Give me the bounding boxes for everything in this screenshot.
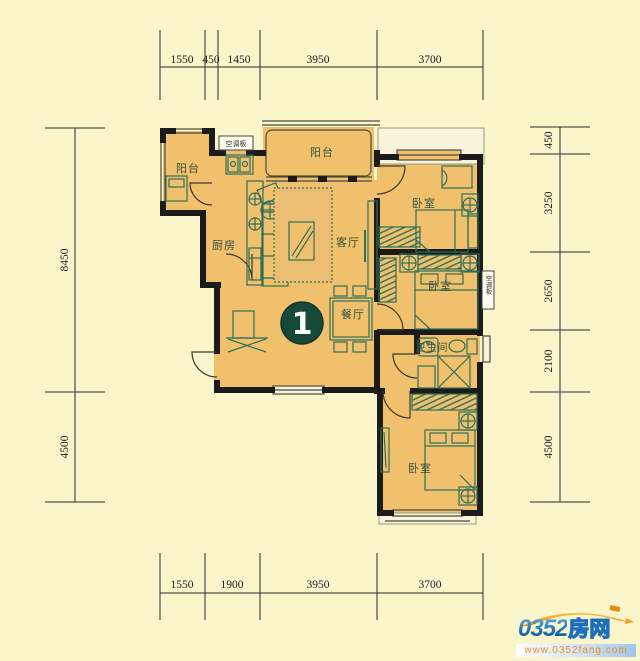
dim-right-4: 2100 xyxy=(543,349,555,372)
dim-right-2: 3250 xyxy=(543,191,555,214)
dim-bottom-4: 3700 xyxy=(419,579,442,591)
dim-top-1: 1550 xyxy=(171,54,194,66)
dim-left-1: 8450 xyxy=(59,248,71,271)
headboard xyxy=(418,255,461,269)
label-bedroom-top: 卧室 xyxy=(412,196,436,210)
dim-top-4: 3950 xyxy=(307,54,330,66)
dim-top-3: 1450 xyxy=(228,54,251,66)
dim-top-2: 450 xyxy=(202,54,220,66)
ac-panel-right-label: 空调板 xyxy=(484,274,492,296)
dim-bottom-2: 1900 xyxy=(221,579,244,591)
watermark-brand: 0352房网 xyxy=(518,617,610,641)
dining-cabinet xyxy=(379,258,396,302)
label-balcony-top: 阳台 xyxy=(310,145,334,159)
floorplan-page: 1550 450 1450 3950 3700 1550 1900 3950 3… xyxy=(0,0,640,661)
dim-top-5: 3700 xyxy=(419,54,442,66)
site-watermark: 0352房网 www.0352fang.com xyxy=(512,600,638,658)
label-balcony-left: 阳台 xyxy=(176,161,200,175)
dim-right-3: 2650 xyxy=(543,279,555,302)
label-dining: 餐厅 xyxy=(341,307,365,321)
label-kitchen: 厨房 xyxy=(212,239,236,252)
bathroom-window-frame xyxy=(483,336,490,362)
unit-number: 1 xyxy=(292,307,313,342)
watermark-url: www.0352fang.com xyxy=(516,644,636,657)
label-bedroom-middle: 卧室 xyxy=(428,279,452,293)
label-bedroom-bottom: 卧室 xyxy=(408,461,432,475)
dim-left-2: 4500 xyxy=(59,435,71,458)
dim-bottom-1: 1550 xyxy=(171,579,194,591)
label-living: 客厅 xyxy=(336,235,360,249)
watermark-brand-number: 0352 xyxy=(518,615,567,642)
dim-right-1: 450 xyxy=(543,131,555,149)
floor-entry xyxy=(214,283,263,391)
floorplan-drawing: 1550 450 1450 3950 3700 1550 1900 3950 3… xyxy=(0,0,640,661)
entry-door xyxy=(192,352,217,377)
unit-badge: 1 xyxy=(281,302,323,344)
dim-right-5: 4500 xyxy=(543,435,555,458)
label-bathroom: 卫生间 xyxy=(416,341,449,354)
wardrobe xyxy=(379,227,420,247)
watermark-brand-name: 房网 xyxy=(568,617,610,641)
wardrobe xyxy=(412,394,477,410)
dim-bottom-3: 3950 xyxy=(307,579,330,591)
ac-panel-top-label: 空调板 xyxy=(226,139,247,148)
